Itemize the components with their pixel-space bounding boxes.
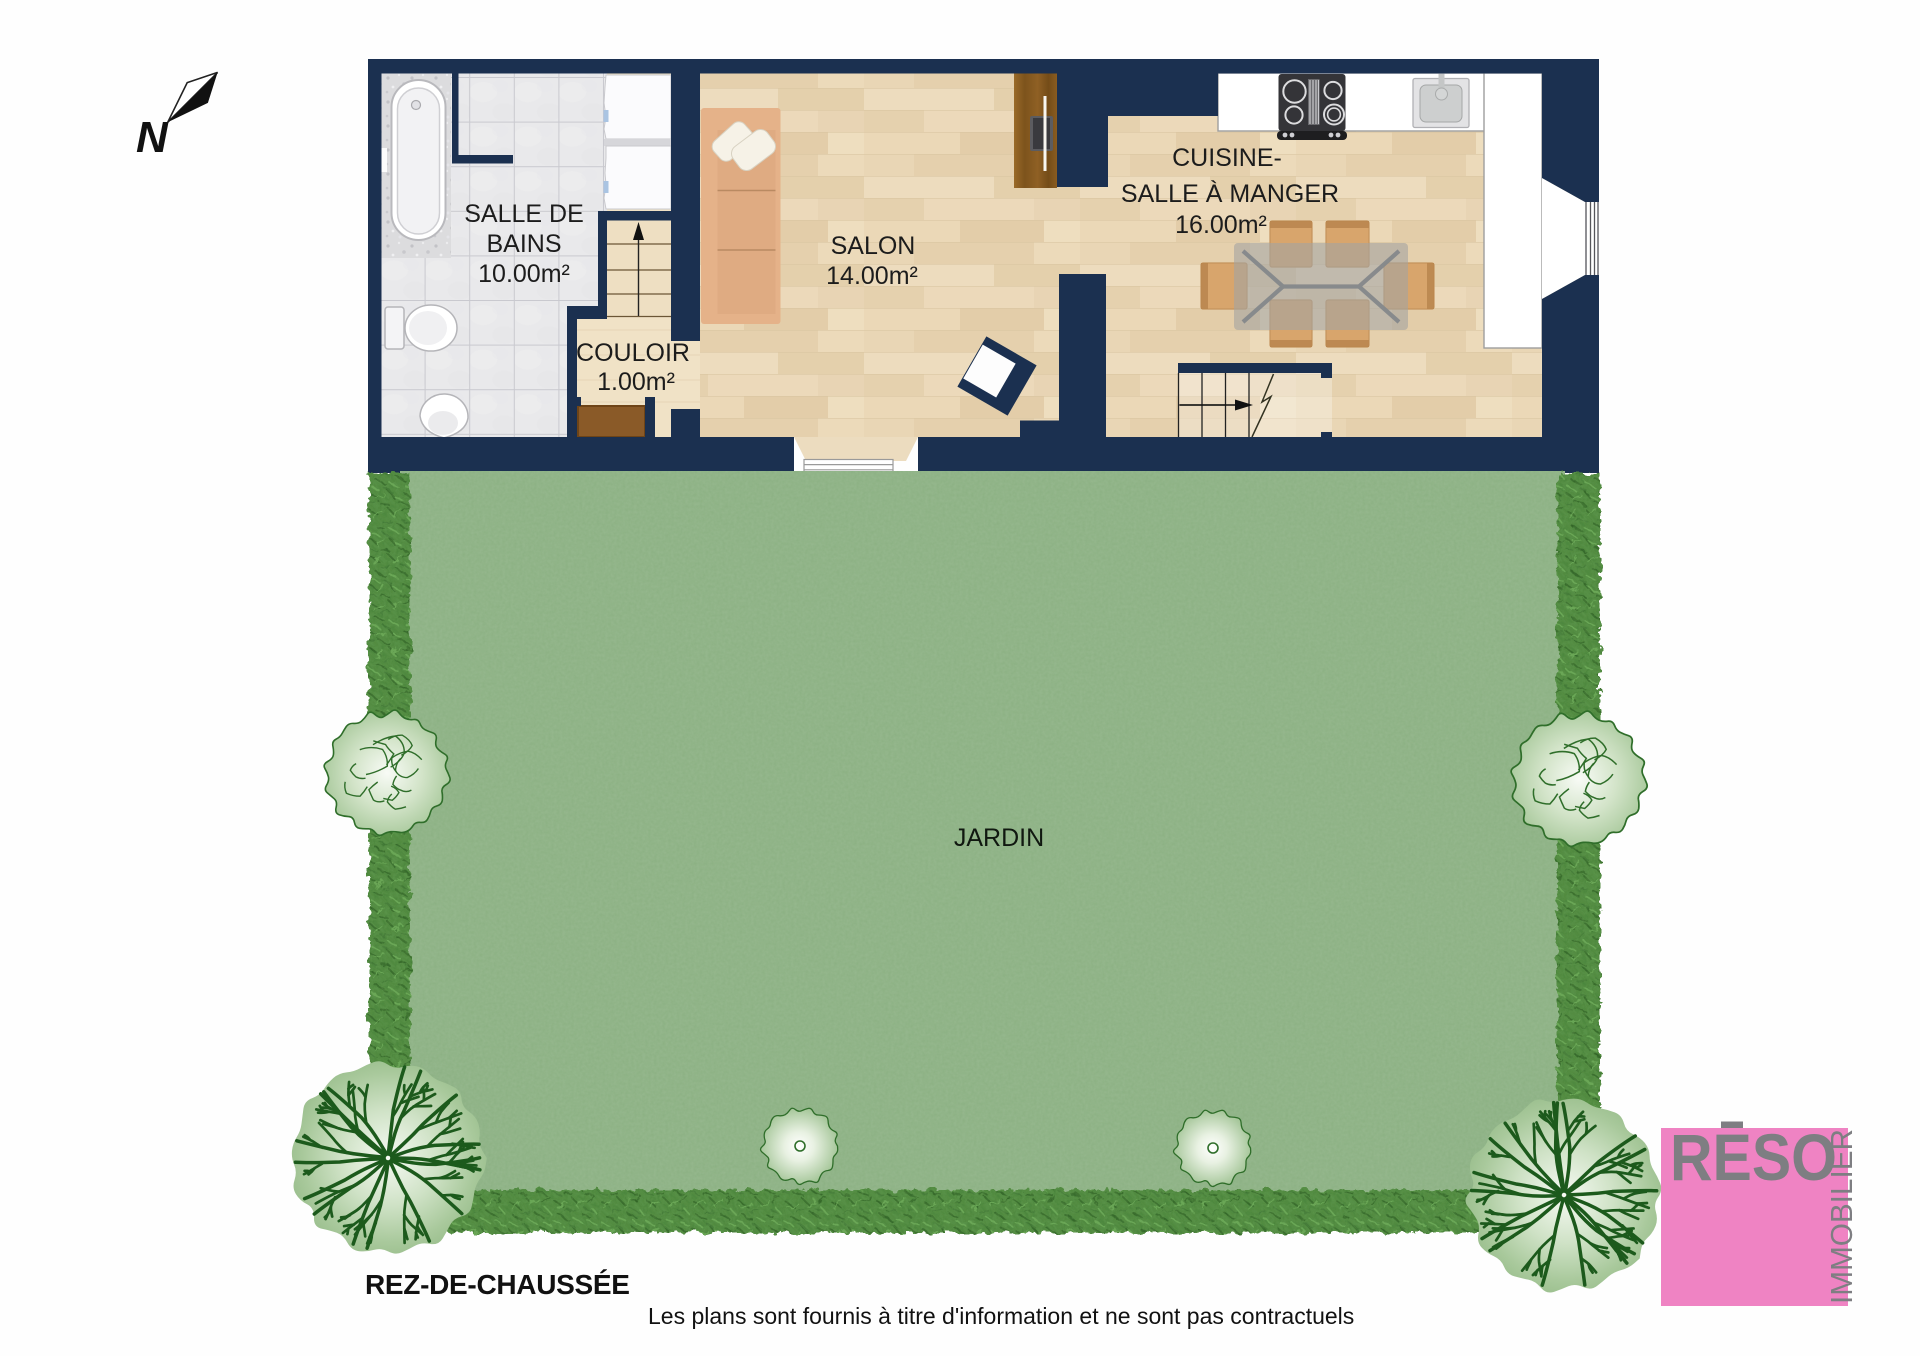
svg-text:SALLE À MANGER: SALLE À MANGER xyxy=(1121,179,1339,208)
svg-text:14.00m²: 14.00m² xyxy=(826,262,918,290)
svg-text:BAINS: BAINS xyxy=(486,230,561,258)
svg-text:16.00m²: 16.00m² xyxy=(1175,211,1267,239)
svg-text:IMMOBILIER: IMMOBILIER xyxy=(1824,1129,1859,1304)
svg-text:COULOIR: COULOIR xyxy=(576,339,690,367)
svg-text:1.00m²: 1.00m² xyxy=(597,368,675,396)
svg-text:CUISINE-: CUISINE- xyxy=(1172,144,1282,172)
svg-text:SALLE DE: SALLE DE xyxy=(464,200,584,228)
svg-text:10.00m²: 10.00m² xyxy=(478,260,570,288)
svg-text:Les plans sont fournis à titre: Les plans sont fournis à titre d'informa… xyxy=(648,1303,1354,1329)
svg-text:JARDIN: JARDIN xyxy=(954,824,1044,852)
svg-text:N: N xyxy=(136,113,169,162)
svg-text:RESO: RESO xyxy=(1670,1120,1837,1194)
svg-text:REZ-DE-CHAUSSÉE: REZ-DE-CHAUSSÉE xyxy=(365,1269,630,1300)
svg-text:SALON: SALON xyxy=(831,232,916,260)
